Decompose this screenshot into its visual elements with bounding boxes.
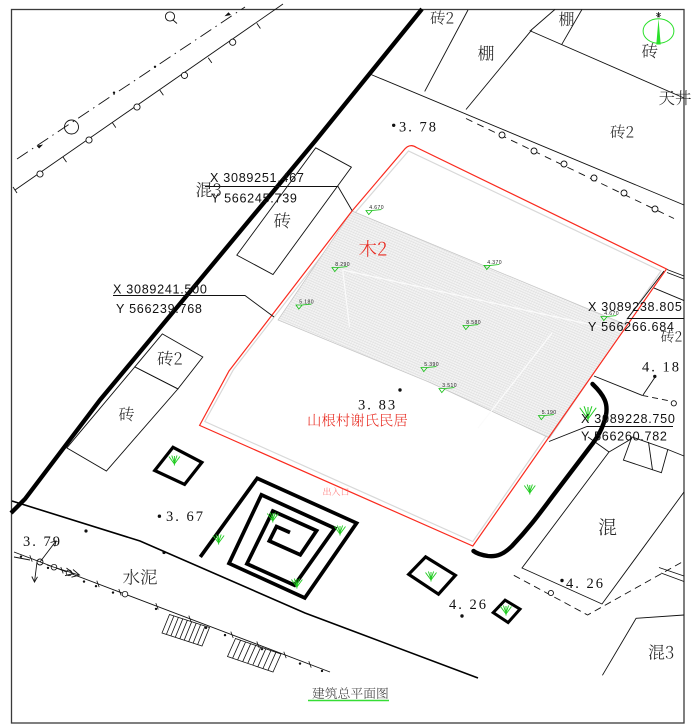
svg-text:X 3089238.805: X 3089238.805: [588, 300, 683, 314]
svg-text:Y 566245.739: Y 566245.739: [211, 192, 298, 206]
svg-text:3. 78: 3. 78: [399, 120, 438, 136]
svg-text:3. 83: 3. 83: [358, 398, 397, 414]
svg-text:5.390: 5.390: [424, 362, 439, 368]
svg-text:5.190: 5.190: [542, 410, 557, 416]
svg-text:X 3089228.750: X 3089228.750: [581, 412, 676, 426]
svg-text:Y 566266.684: Y 566266.684: [588, 320, 675, 334]
svg-text:8.290: 8.290: [335, 262, 350, 268]
svg-text:Y 566239.768: Y 566239.768: [116, 302, 203, 316]
svg-text:8.580: 8.580: [466, 320, 481, 326]
svg-text:5.180: 5.180: [299, 299, 314, 305]
svg-text:X 3089251.467: X 3089251.467: [210, 171, 305, 185]
svg-text:4. 26: 4. 26: [449, 597, 488, 613]
svg-text:4. 26: 4. 26: [566, 576, 605, 592]
svg-text:4.370: 4.370: [487, 260, 502, 266]
svg-text:3. 67: 3. 67: [166, 509, 205, 525]
svg-text:Y 566260.782: Y 566260.782: [581, 430, 668, 444]
svg-text:4.670: 4.670: [369, 205, 384, 211]
svg-text:3.510: 3.510: [442, 383, 457, 389]
svg-text:4. 18: 4. 18: [642, 360, 681, 376]
svg-text:3. 79: 3. 79: [23, 534, 62, 550]
svg-text:X 3089241.500: X 3089241.500: [113, 283, 208, 297]
